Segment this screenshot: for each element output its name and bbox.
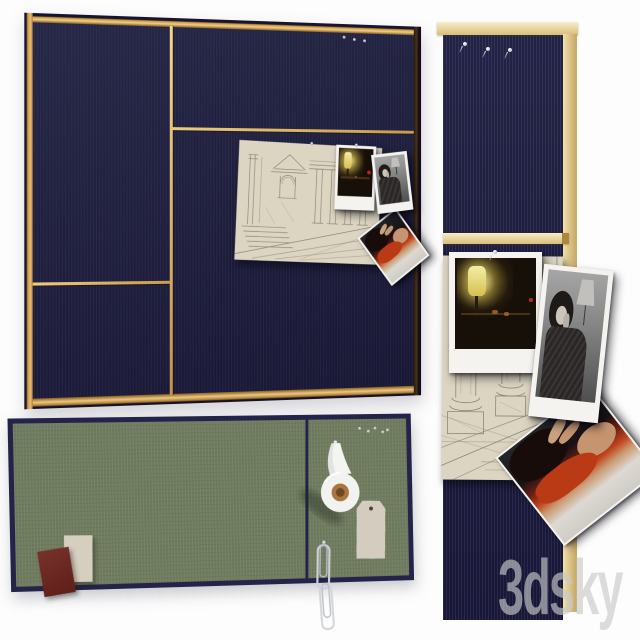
green-board-accessories [13,419,411,640]
body-shape [378,176,402,205]
photo-night-lamp [455,258,536,349]
bw-portrait-photo [371,151,413,214]
render-canvas: 3dsky [0,0,640,640]
push-pin [322,541,325,544]
red-light-dot [367,171,371,175]
push-pin [381,431,384,434]
navy-square-pinboard [24,13,421,410]
push-pin [310,142,313,145]
green-fabric [13,419,409,587]
watermark: 3dsky [498,548,622,626]
push-pin [386,429,389,432]
push-pin [508,48,512,52]
push-pin [367,430,370,433]
lamp-stand-shape [395,167,397,175]
lamp-stand-shape [583,305,587,326]
brass-frame-bottom [24,386,421,410]
brass-divider-left-horizontal [33,281,170,286]
brass-trim-top [437,22,578,35]
tape-roll [294,440,360,530]
photo-woman-portrait [374,154,410,205]
red-light-dot [529,298,533,302]
push-pin [493,250,497,254]
green-pinboard [7,414,414,593]
trim-end-notch [562,233,569,244]
body-shape [539,326,588,402]
brass-divider-vertical [170,26,173,395]
push-pin [358,427,361,430]
push-pin [353,38,356,41]
paper-clip-chain [316,540,334,629]
lamp-shade [468,266,486,296]
push-pin [343,36,346,39]
push-pin [355,144,358,147]
brass-frame-top [24,13,421,36]
lamp-polaroid-large [449,252,542,373]
push-pin [463,42,467,46]
lamp-shade [344,152,352,168]
lampshade-shape [576,279,597,306]
brass-frame-right [414,27,421,396]
brass-divider-right-horizontal [173,127,414,134]
push-pin [363,39,366,42]
photo-night-lamp [337,148,373,197]
push-pin [486,47,490,51]
brass-trim-middle [443,233,569,244]
brass-frame-left [24,13,32,410]
photo-woman-portrait [535,269,608,403]
push-pin [374,427,377,430]
